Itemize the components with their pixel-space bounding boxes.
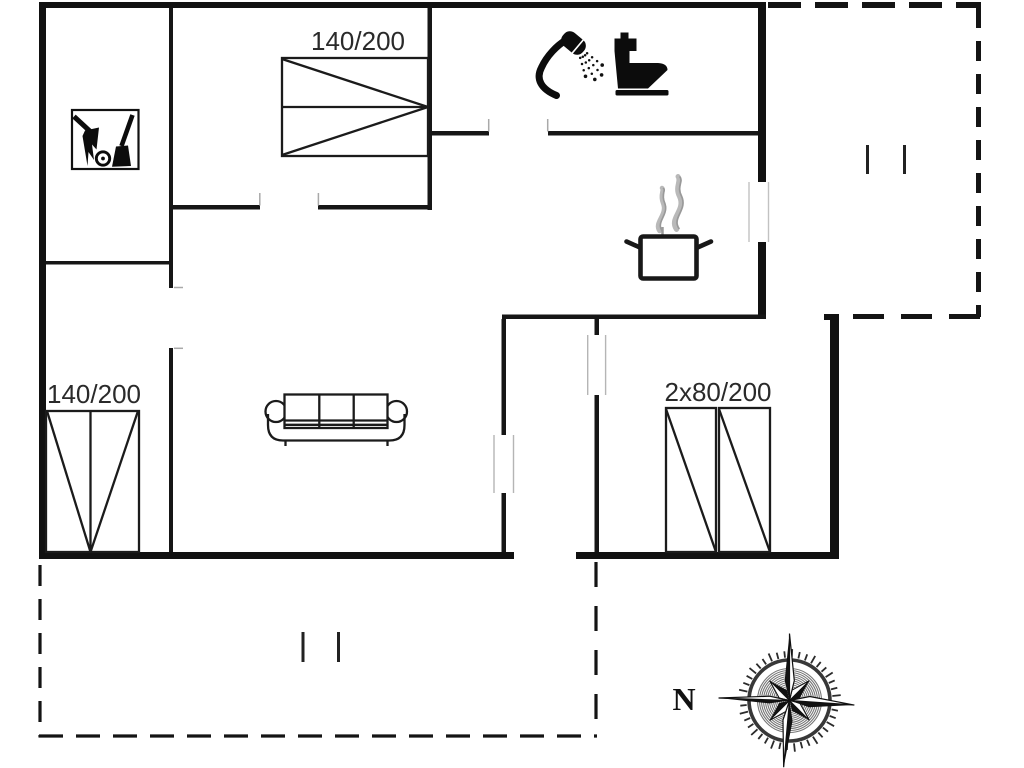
svg-text:140/200: 140/200 [311, 26, 405, 56]
svg-text:N: N [672, 681, 695, 717]
svg-text:140/200: 140/200 [47, 379, 141, 409]
svg-text:2x80/200: 2x80/200 [665, 377, 772, 407]
